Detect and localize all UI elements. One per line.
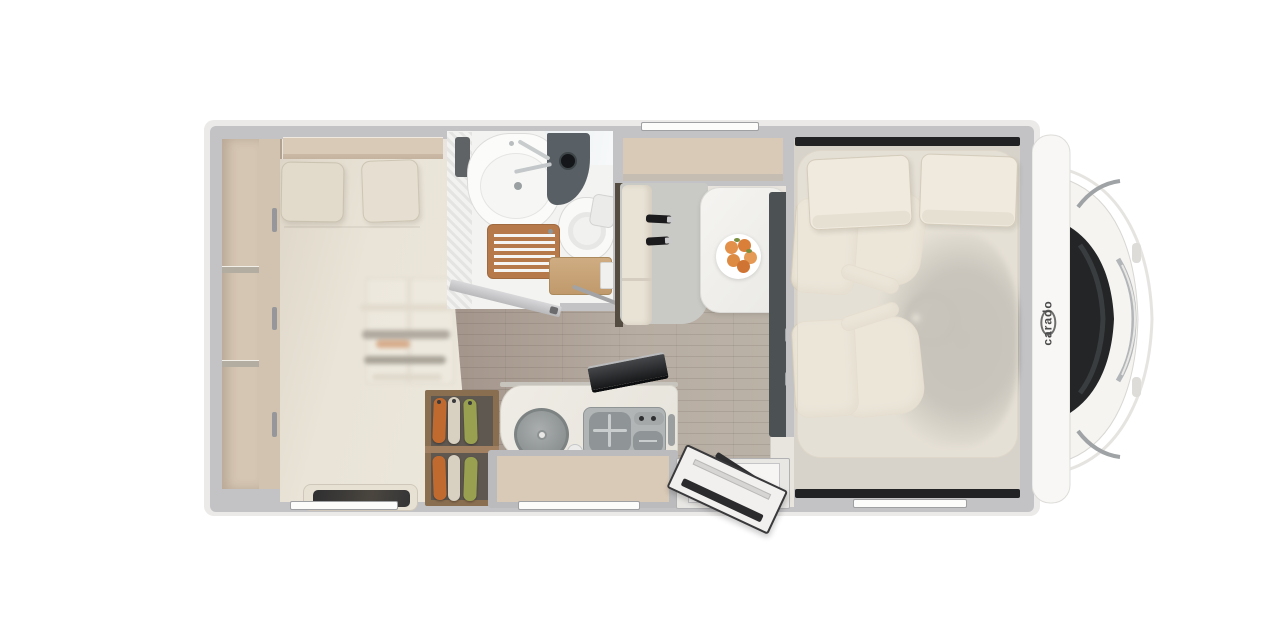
bench-cushions — [622, 185, 652, 325]
cushion-split — [622, 278, 652, 281]
bike-part — [360, 304, 452, 311]
locker-interior — [623, 138, 783, 176]
hanger-hook — [437, 400, 441, 404]
carado-logo-text: carado — [1041, 300, 1055, 345]
basin-drain — [514, 182, 522, 190]
kitchen-lower-cabinet — [488, 450, 678, 508]
rear-wardrobe-shelf — [222, 266, 259, 273]
bike-frame-orange — [376, 340, 410, 348]
towel-bar — [668, 414, 675, 446]
sink-faucet — [537, 430, 547, 440]
wardrobe-door-handle — [272, 412, 277, 437]
overhead-locker-bed — [283, 137, 443, 161]
kitchen-hob — [583, 407, 666, 456]
cab-bed-pillow — [806, 154, 913, 230]
bed-pillow — [280, 161, 344, 222]
window-bottom-rear — [290, 501, 398, 510]
fruit-leaf — [746, 249, 752, 253]
fruit-leaf — [734, 238, 740, 242]
clothes-cream — [448, 397, 460, 444]
bed-pillow — [361, 159, 420, 223]
pot-support — [608, 414, 611, 447]
faucet-base — [559, 152, 577, 170]
rear-wardrobe-interior — [222, 139, 259, 489]
carado-logo: carado — [1033, 284, 1063, 362]
cab-divider-wall — [786, 139, 794, 439]
door-handle — [549, 306, 558, 315]
shower-drain — [548, 229, 553, 234]
bike-storage-underbed — [352, 272, 458, 390]
grate-slats — [494, 230, 555, 275]
motorhome-floorplan: carado — [0, 0, 1280, 640]
hanger-hook — [452, 399, 456, 403]
side-mirror — [1132, 243, 1141, 263]
overhead-locker-dinette — [617, 132, 789, 186]
clothes-orange — [432, 456, 447, 500]
fruit-plate — [716, 234, 761, 279]
duvet-crease — [284, 226, 420, 228]
wardrobe-door-handle — [272, 208, 277, 232]
cab-bed-pillow — [919, 153, 1018, 227]
window-bottom-cab — [853, 499, 967, 508]
bike-part — [362, 330, 450, 339]
wardrobe-door-handle — [272, 307, 277, 330]
seatbelt — [646, 236, 670, 245]
rear-wardrobe-doors — [259, 139, 282, 489]
clothes-orange — [432, 398, 447, 443]
carado-logo-inner: carado — [1041, 300, 1055, 345]
seatbelt — [646, 214, 672, 223]
rear-wardrobe-shelf — [222, 360, 259, 367]
cab-window-strip-bottom — [795, 489, 1020, 498]
hob-knob — [651, 416, 656, 421]
clothes-olive — [463, 457, 478, 501]
window-bottom-kitchen — [518, 501, 640, 510]
hanger-hook — [468, 401, 472, 405]
locker-front-lip — [623, 174, 783, 181]
side-mirror — [1132, 377, 1141, 397]
bike-part — [364, 356, 446, 364]
cab-window-strip-top — [795, 137, 1020, 146]
clothes-cream — [448, 455, 460, 501]
bike-part — [372, 374, 442, 380]
pot-support — [639, 440, 657, 442]
clothes-olive — [463, 399, 478, 444]
pillow-fold — [922, 209, 1014, 225]
hob-knob — [639, 416, 644, 421]
cabinet-front — [497, 456, 669, 502]
fruit — [737, 260, 750, 273]
pillow-fold — [812, 210, 911, 228]
fruit — [725, 241, 738, 254]
tap-hole — [509, 141, 514, 146]
window-top — [641, 122, 759, 131]
